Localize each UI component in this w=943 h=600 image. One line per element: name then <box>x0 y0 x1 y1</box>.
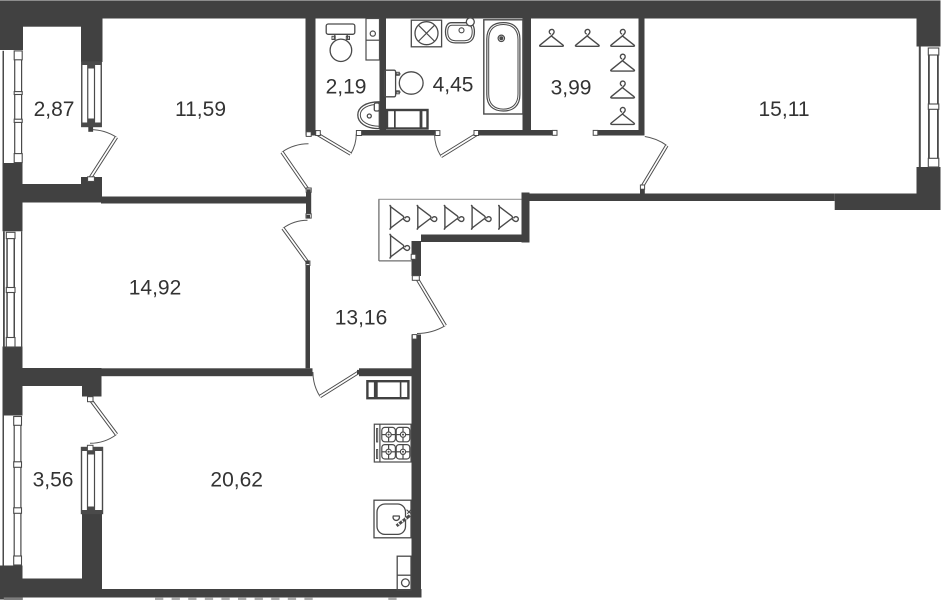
svg-text:11,59: 11,59 <box>175 98 226 121</box>
svg-text:13,16: 13,16 <box>335 306 388 329</box>
svg-text:2,87: 2,87 <box>34 98 75 121</box>
svg-text:15,11: 15,11 <box>759 98 810 121</box>
svg-text:2,19: 2,19 <box>326 76 367 99</box>
svg-text:4,45: 4,45 <box>433 73 474 96</box>
svg-text:20,62: 20,62 <box>210 468 263 491</box>
svg-text:14,92: 14,92 <box>129 277 182 300</box>
svg-text:3,99: 3,99 <box>551 77 592 100</box>
svg-text:3,56: 3,56 <box>33 468 74 491</box>
